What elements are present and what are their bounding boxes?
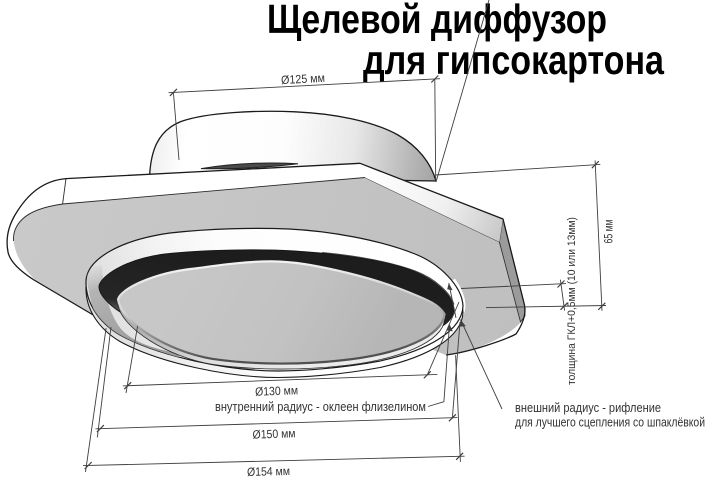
svg-text:Ø154 мм: Ø154 мм: [247, 464, 290, 479]
svg-text:Ø125 мм: Ø125 мм: [281, 71, 326, 87]
svg-text:Щелевой диффузор: Щелевой диффузор: [267, 0, 607, 42]
svg-text:65 мм: 65 мм: [602, 220, 616, 244]
svg-text:внутренний радиус - оклеен фли: внутренний радиус - оклеен флизелином: [215, 400, 426, 414]
svg-text:внешний радиус - рифление: внешний радиус - рифление: [515, 401, 661, 415]
svg-text:для лучшего сцепления со шпакл: для лучшего сцепления со шпаклёвкой: [515, 416, 705, 430]
svg-text:для гипсокартона: для гипсокартона: [363, 37, 665, 83]
svg-text:Ø130 мм: Ø130 мм: [255, 383, 298, 399]
svg-text:толщина ГКЛ+0,5мм (10 или 13мм: толщина ГКЛ+0,5мм (10 или 13мм): [566, 217, 578, 385]
svg-text:Ø150 мм: Ø150 мм: [252, 426, 295, 441]
